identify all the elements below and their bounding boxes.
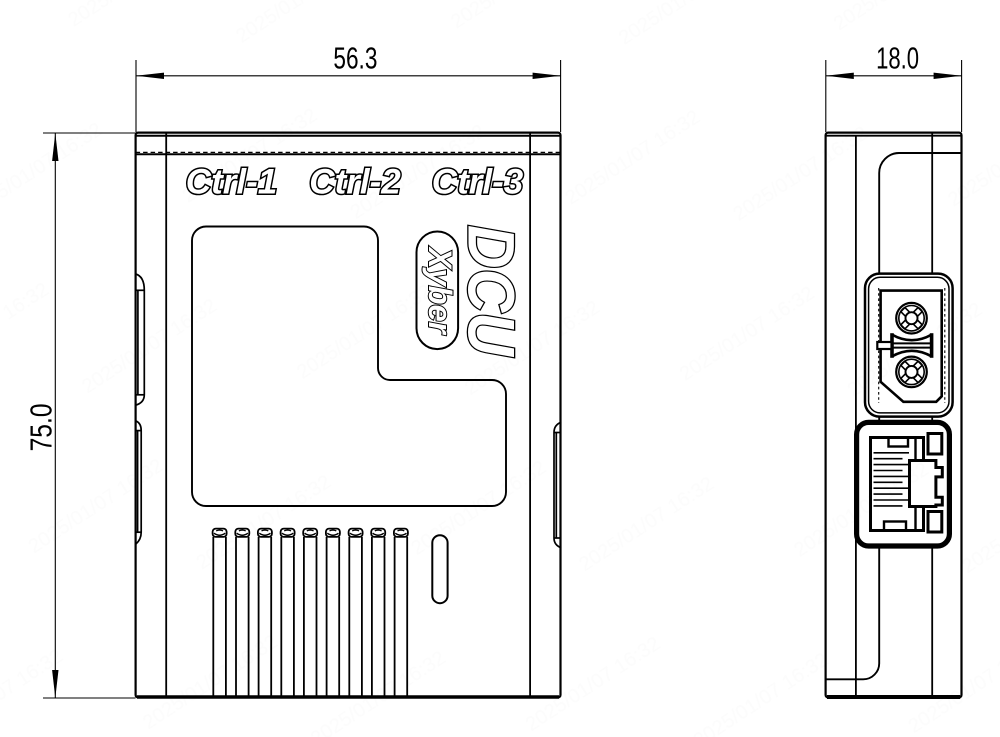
svg-text:Ctrl-1: Ctrl-1 <box>186 163 277 202</box>
svg-text:18.0: 18.0 <box>876 41 919 76</box>
svg-text:Ctrl-2: Ctrl-2 <box>309 163 401 202</box>
svg-text:Xyber: Xyber <box>422 246 458 335</box>
svg-text:Ctrl-3: Ctrl-3 <box>432 163 524 202</box>
svg-text:75.0: 75.0 <box>23 403 58 451</box>
svg-text:56.3: 56.3 <box>333 41 377 76</box>
svg-text:DCU: DCU <box>455 225 529 358</box>
